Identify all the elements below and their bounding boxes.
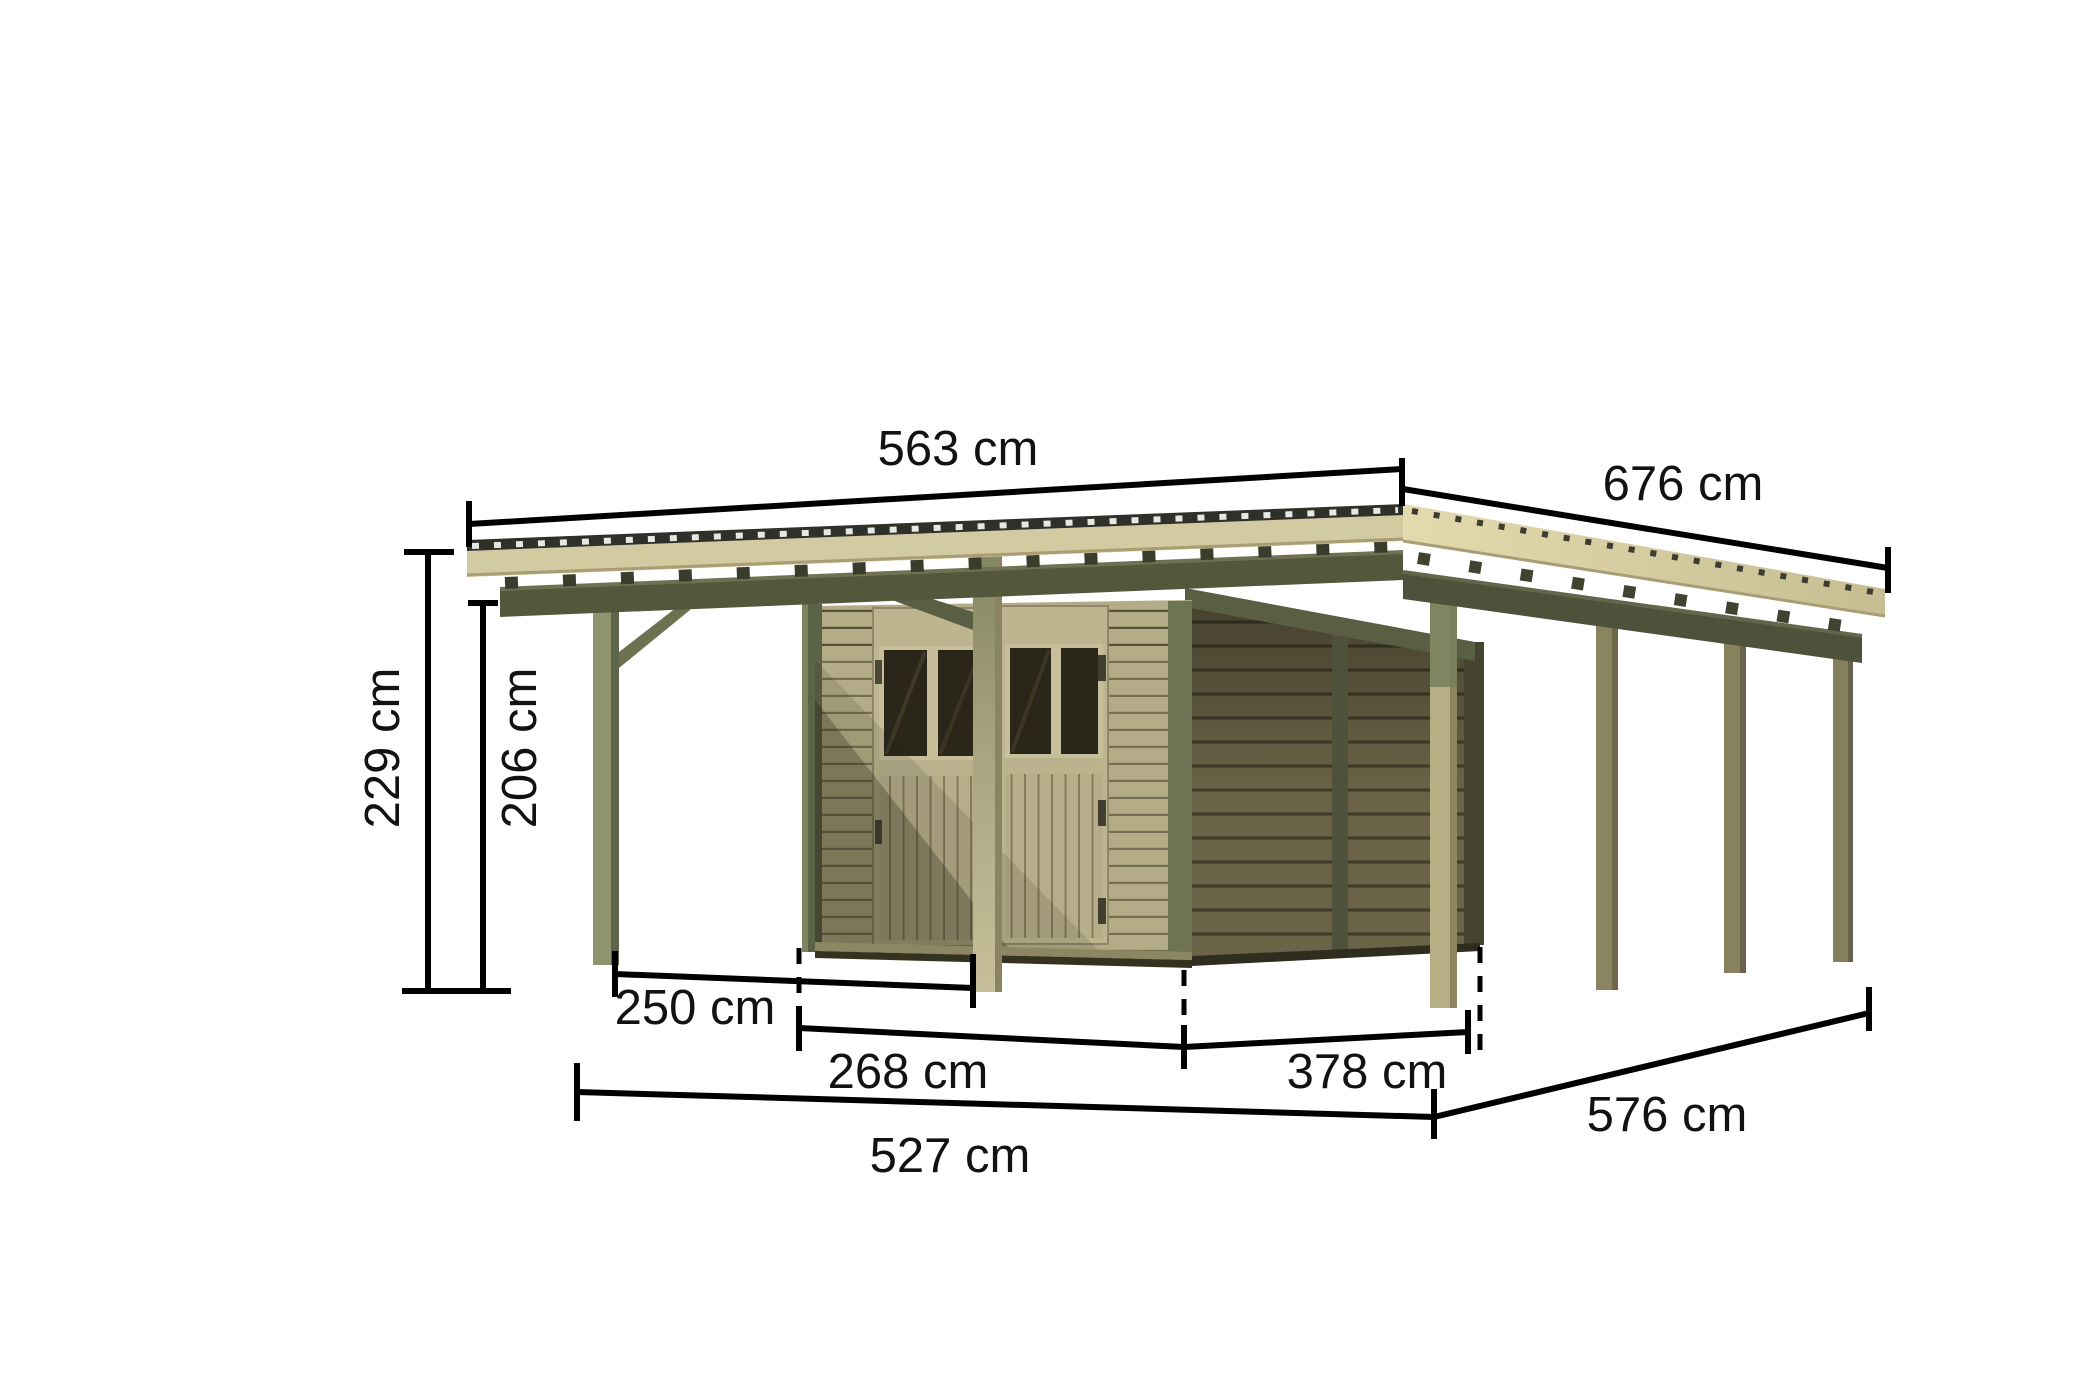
- side-post-3: [1724, 636, 1746, 973]
- label-storeroom-side-depth: 378 cm: [1287, 1045, 1448, 1099]
- side-wall-batten: [1332, 623, 1348, 952]
- side-post-4: [1833, 650, 1853, 962]
- dim-total-height: [404, 552, 454, 991]
- door-mid-rail: [1005, 758, 1103, 774]
- front-left-post: [593, 587, 690, 965]
- side-post-1: [1430, 592, 1457, 1008]
- label-roof-side-depth: 676 cm: [1603, 457, 1764, 511]
- door-hinge: [1098, 655, 1106, 681]
- label-total-height: 229 cm: [356, 668, 410, 829]
- door-hinge: [1098, 898, 1106, 924]
- label-clearance-height: 206 cm: [493, 668, 547, 829]
- side-post-2: [1596, 618, 1618, 990]
- label-side-overall-depth: 576 cm: [1587, 1088, 1748, 1142]
- label-storeroom-front-width: 268 cm: [828, 1045, 989, 1099]
- label-front-overall-width: 527 cm: [870, 1129, 1031, 1183]
- label-left-bay-width: 250 cm: [615, 981, 776, 1035]
- side-wall-rear-batten: [1464, 642, 1484, 945]
- door-hinge: [1098, 800, 1106, 826]
- front-right-corner-batten: [1168, 601, 1192, 959]
- carport-structure: [467, 504, 1885, 1008]
- label-roof-front-width: 563 cm: [878, 422, 1039, 476]
- front-left-corner-edge: [802, 604, 808, 952]
- door-hinge: [875, 660, 882, 684]
- door-window-pane: [1061, 648, 1098, 754]
- dimension-diagram-page: 563 cm 676 cm 229 cm 206 cm 250 cm 268 c…: [0, 0, 2100, 1400]
- carport-diagram: 563 cm 676 cm 229 cm 206 cm 250 cm 268 c…: [0, 0, 2100, 1400]
